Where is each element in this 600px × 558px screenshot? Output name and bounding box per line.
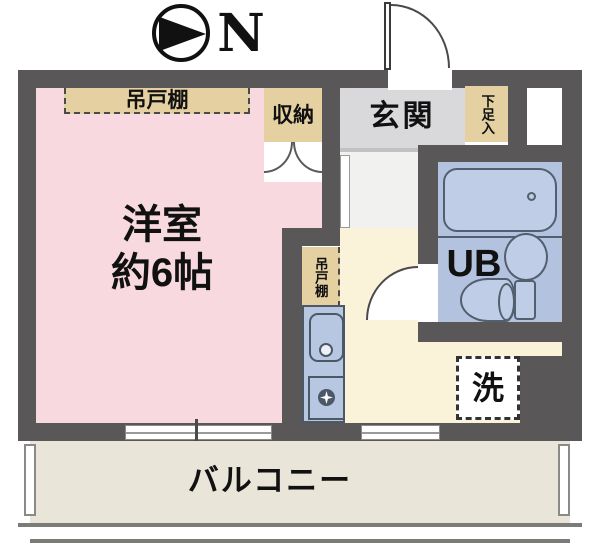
- wall-left: [18, 70, 36, 441]
- wall-entrance-divider: [322, 88, 340, 232]
- compass-circle: [152, 4, 210, 62]
- wall-unit-bath-top: [418, 145, 562, 162]
- entrance-door-arc: [391, 4, 450, 68]
- toilet-bowl: [460, 278, 516, 322]
- hanging-cupboard-kitchen-label: 吊戸棚: [313, 257, 327, 298]
- hall-floor: [340, 152, 418, 228]
- main-room-label: 洋室 約6帖: [42, 194, 282, 304]
- kitchen-window: [361, 425, 440, 440]
- shoe-cabinet-label: 下足入: [480, 94, 494, 135]
- unit-bath-door-opening: [418, 264, 438, 322]
- wall-room-east: [282, 228, 302, 441]
- main-room-door: [340, 155, 350, 228]
- window-sash-line: [362, 432, 439, 434]
- kitchen-floor: [340, 228, 418, 423]
- exterior-notch: [527, 88, 562, 145]
- balcony-edge-left: [24, 444, 36, 516]
- bathtub: [443, 168, 557, 232]
- stove: [308, 376, 345, 420]
- window-sash-line: [126, 432, 271, 434]
- north-label: N: [218, 2, 264, 64]
- wall-shoebox-side: [508, 88, 527, 145]
- hanging-cupboard-main: 吊戸棚: [64, 88, 250, 114]
- storage-closet: 収納: [264, 88, 322, 142]
- wall-right: [562, 70, 582, 441]
- stove-burner-icon: [318, 389, 335, 406]
- wall-laundry-side: [520, 356, 562, 423]
- balcony-front-line: [18, 523, 582, 527]
- kitchen-floor-nook: [418, 342, 562, 356]
- north-arrow-icon: [159, 16, 206, 52]
- sink-drain-icon: [319, 343, 333, 357]
- toilet-tank: [514, 280, 536, 320]
- washbasin: [504, 233, 548, 281]
- balcony-edge-right: [558, 444, 570, 516]
- bathtub-drain-icon: [527, 192, 536, 201]
- entrance-label: 玄関: [340, 96, 465, 138]
- floor-plan: N 吊戸棚 収納 下足入 吊戸棚 UB: [0, 0, 600, 558]
- washing-machine-space: 洗: [456, 356, 520, 420]
- main-room-size: 約6帖: [111, 249, 213, 297]
- main-room-name: 洋室: [122, 201, 202, 249]
- wall-unit-bath-bottom: [418, 322, 562, 342]
- storage-label: 収納: [272, 105, 314, 126]
- entrance-door-leaf: [384, 2, 391, 70]
- washing-machine-label: 洗: [472, 372, 504, 404]
- entrance-threshold: [388, 70, 452, 90]
- balcony-label: バルコニー: [90, 458, 450, 502]
- hanging-cupboard-main-label: 吊戸棚: [126, 90, 189, 111]
- toilet-seat-line: [498, 283, 515, 321]
- main-room-window: [125, 425, 272, 440]
- hanging-cupboard-kitchen: 吊戸棚: [302, 247, 340, 307]
- burner-star-icon: [320, 391, 333, 404]
- shoe-cabinet: 下足入: [465, 86, 508, 142]
- balcony-rail-line: [30, 539, 570, 543]
- kitchen-counter: [302, 305, 345, 423]
- kitchen-sink: [309, 313, 344, 362]
